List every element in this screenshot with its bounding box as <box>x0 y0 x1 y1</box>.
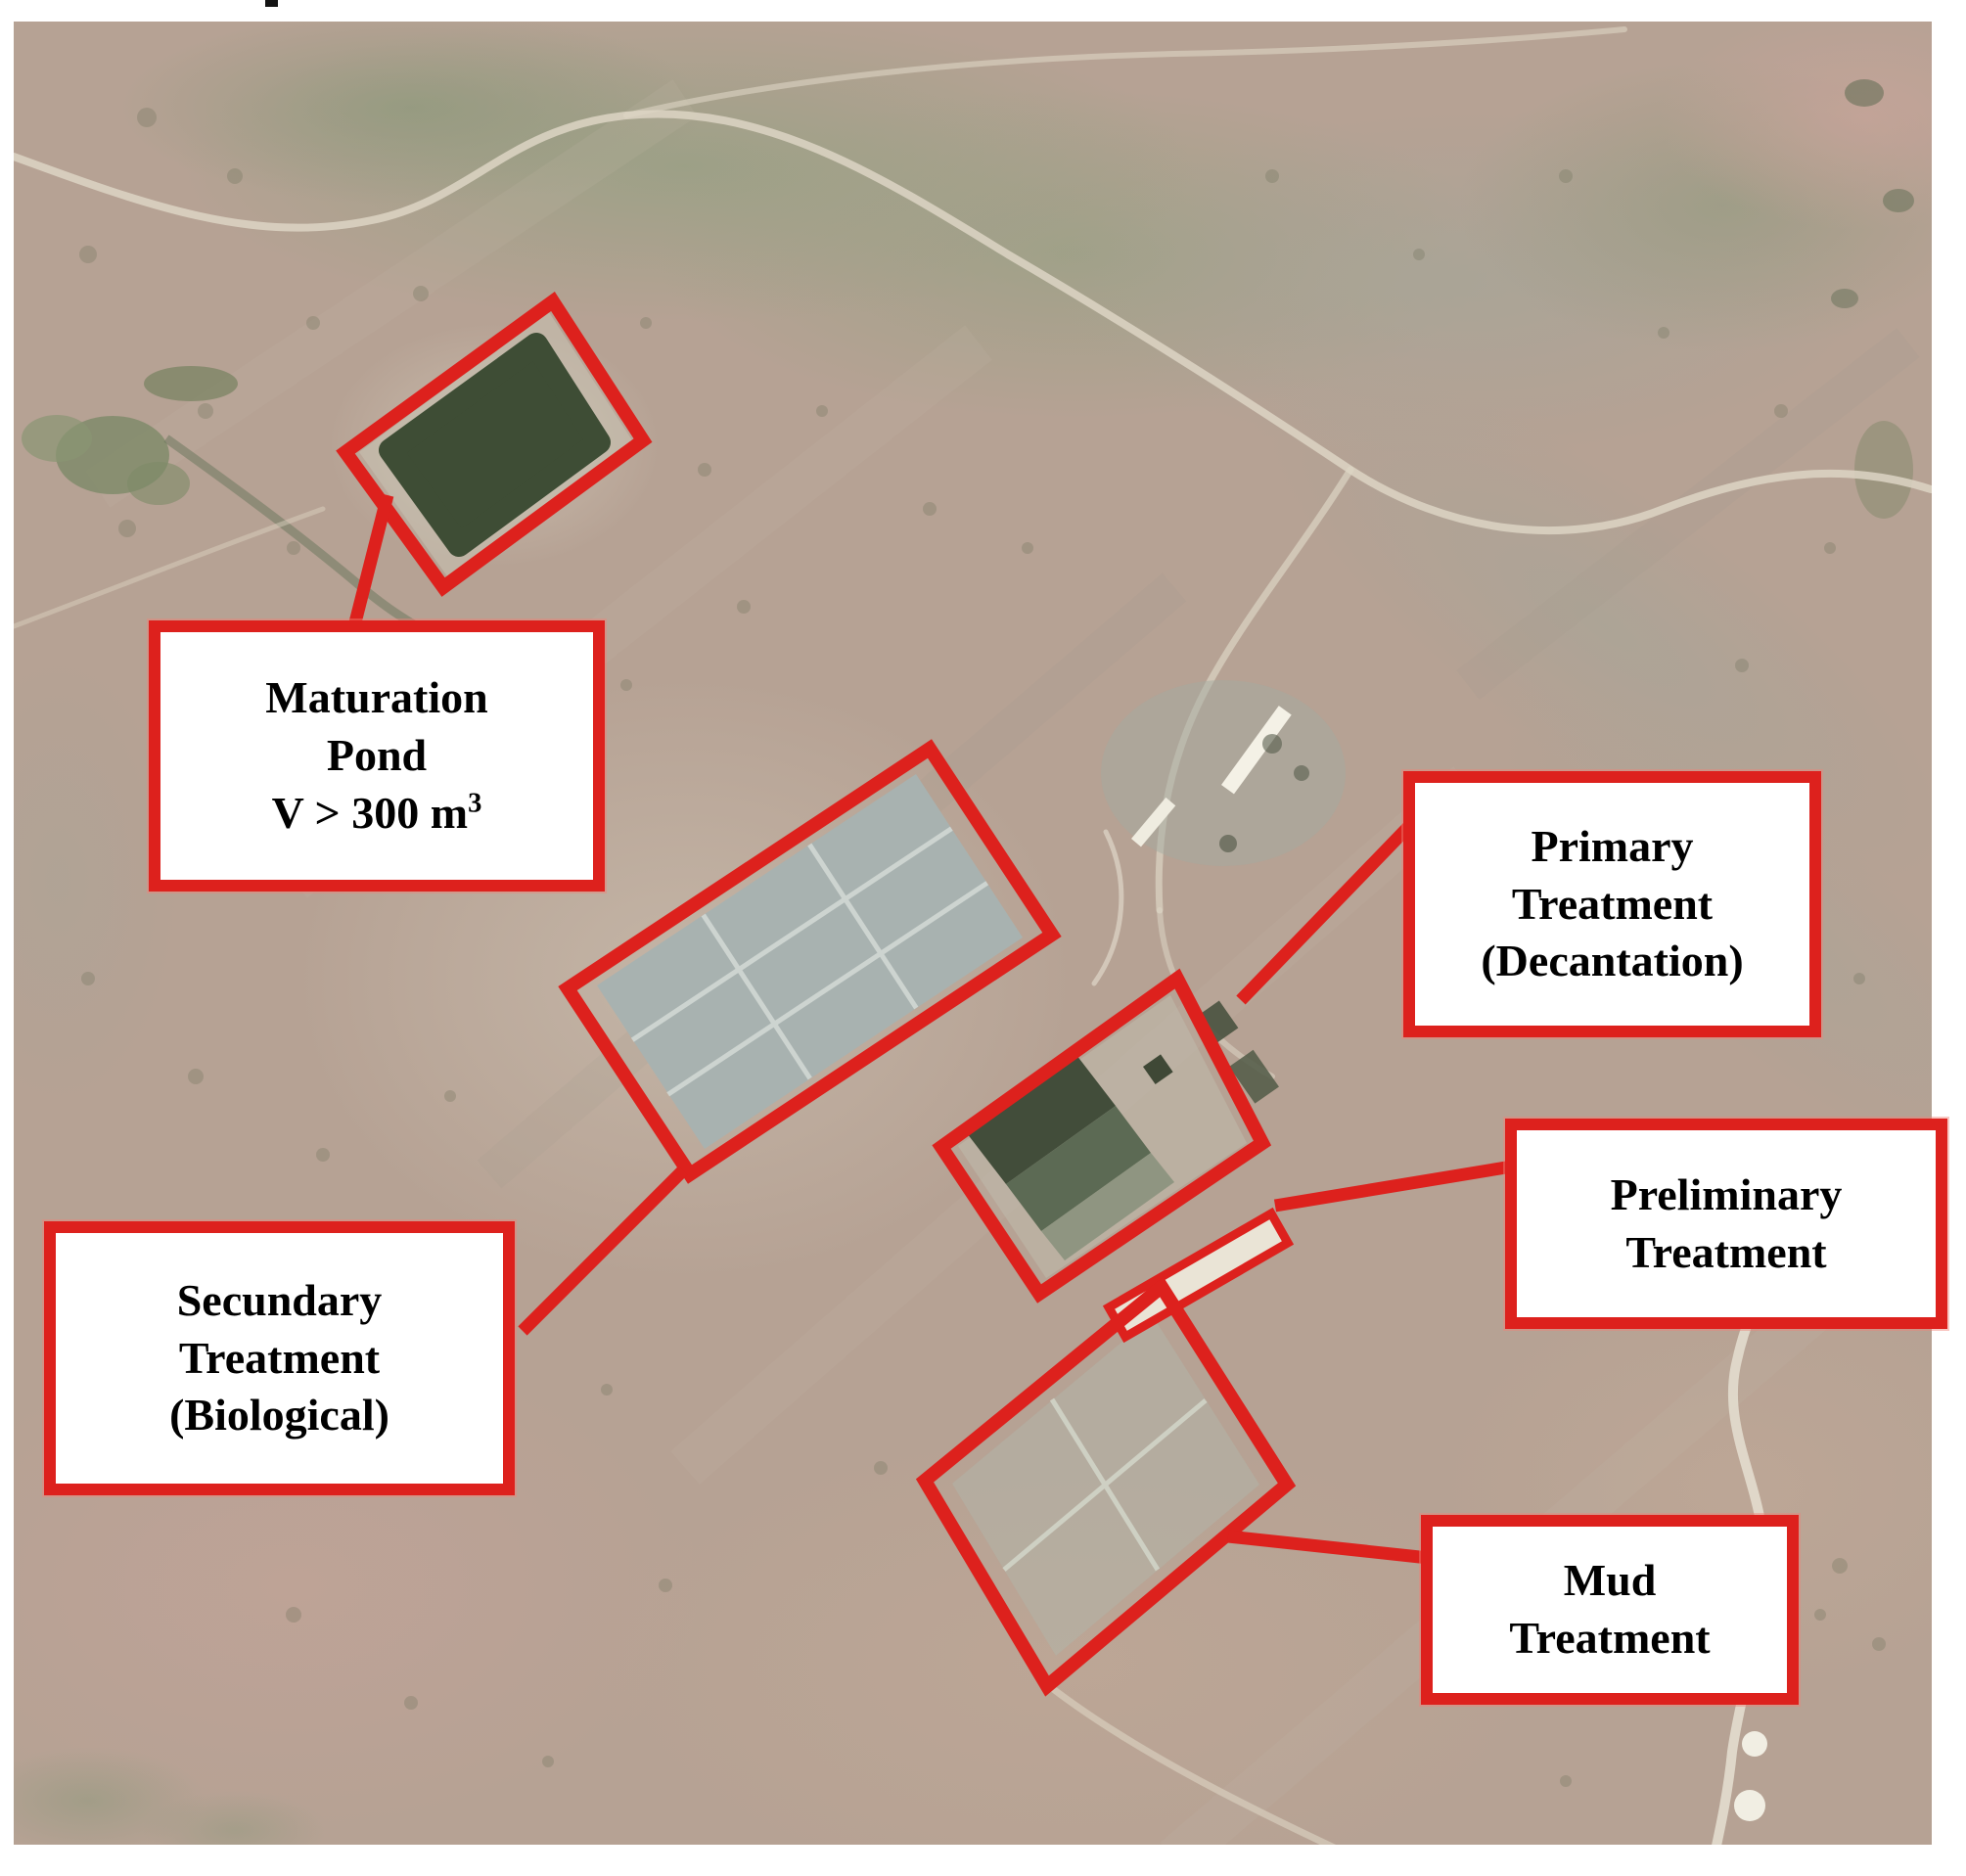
annotated-satellite-figure: Maturation Pond V > 300 m3 Primary Treat… <box>0 0 1966 1876</box>
maturation-pond-label-line1: Maturation <box>265 669 487 727</box>
volume-value: V > 300 m <box>272 788 468 838</box>
primary-treatment-label-line3: (Decantation) <box>1481 933 1743 990</box>
preliminary-treatment-label-line2: Treatment <box>1625 1224 1826 1282</box>
mud-treatment-label: Mud Treatment <box>1421 1515 1799 1705</box>
preliminary-treatment-label-line1: Preliminary <box>1611 1167 1843 1224</box>
primary-treatment-label: Primary Treatment (Decantation) <box>1403 771 1821 1037</box>
primary-treatment-label-line1: Primary <box>1531 818 1693 876</box>
secundary-treatment-label-line3: (Biological) <box>169 1387 389 1444</box>
secundary-treatment-label: Secundary Treatment (Biological) <box>44 1221 515 1495</box>
maturation-pond-label-line2: Pond <box>327 727 427 785</box>
primary-treatment-label-line2: Treatment <box>1512 876 1713 934</box>
cropped-text-fragment <box>265 0 278 7</box>
maturation-pond-label: Maturation Pond V > 300 m3 <box>149 620 605 892</box>
volume-exponent: 3 <box>468 789 481 819</box>
mud-treatment-label-line2: Treatment <box>1509 1610 1710 1668</box>
maturation-pond-label-volume: V > 300 m3 <box>272 785 482 843</box>
secundary-treatment-label-line1: Secundary <box>177 1272 383 1330</box>
preliminary-treatment-label: Preliminary Treatment <box>1505 1119 1947 1329</box>
plant-buildings <box>1101 680 1346 866</box>
mud-treatment-label-line1: Mud <box>1564 1552 1657 1610</box>
secundary-treatment-label-line2: Treatment <box>179 1330 380 1388</box>
